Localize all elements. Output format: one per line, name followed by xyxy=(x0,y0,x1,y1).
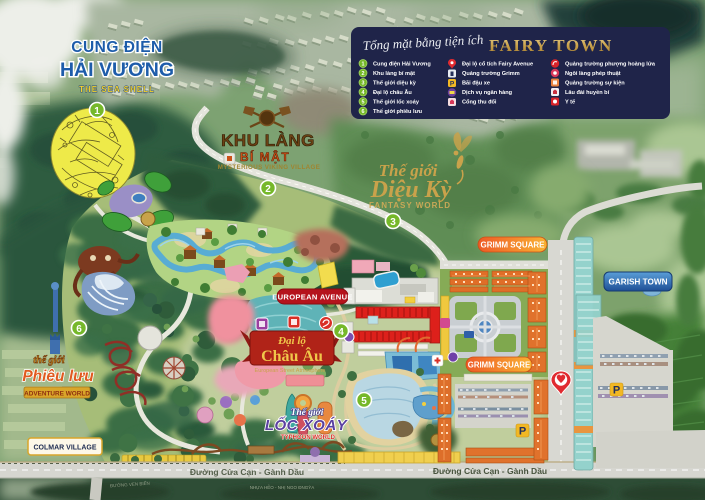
svg-text:P: P xyxy=(613,385,620,397)
svg-text:LỐC XOÁY: LỐC XOÁY xyxy=(265,416,349,434)
svg-text:2: 2 xyxy=(362,71,365,77)
svg-text:Thế giới diệu kỳ: Thế giới diệu kỳ xyxy=(373,80,417,87)
svg-text:1: 1 xyxy=(362,62,365,68)
svg-text:Đại lộ châu Âu: Đại lộ châu Âu xyxy=(373,89,412,96)
svg-text:thế giới: thế giới xyxy=(33,355,64,366)
svg-text:6: 6 xyxy=(76,324,82,335)
svg-text:GRIMM SQUARE: GRIMM SQUARE xyxy=(468,361,530,370)
svg-text:GARISH TOWN: GARISH TOWN xyxy=(609,278,668,287)
svg-text:4: 4 xyxy=(362,90,365,96)
svg-text:FANTASY WORLD: FANTASY WORLD xyxy=(369,201,451,210)
svg-text:Cung điện Hải Vương: Cung điện Hải Vương xyxy=(373,62,431,68)
svg-text:HẢI VƯƠNG: HẢI VƯƠNG xyxy=(60,58,174,81)
svg-text:Y tế: Y tế xyxy=(565,99,576,106)
svg-text:MYSTERIOUS VIKING VILLAGE: MYSTERIOUS VIKING VILLAGE xyxy=(218,164,320,171)
svg-text:5: 5 xyxy=(362,100,365,106)
svg-text:Dịch vụ ngân hàng: Dịch vụ ngân hàng xyxy=(462,90,513,96)
svg-text:2: 2 xyxy=(265,184,271,195)
svg-text:P: P xyxy=(450,80,455,87)
svg-text:GRIMM SQUARE: GRIMM SQUARE xyxy=(481,241,546,250)
svg-text:3: 3 xyxy=(390,217,396,228)
svg-text:6: 6 xyxy=(362,109,365,115)
svg-text:EUROPEAN AVENUE: EUROPEAN AVENUE xyxy=(272,293,352,302)
svg-text:Đại lộ cổ tích Fairy Avenue: Đại lộ cổ tích Fairy Avenue xyxy=(462,61,533,68)
svg-text:Thế giới lốc xoáy: Thế giới lốc xoáy xyxy=(373,99,420,106)
svg-text:COLMAR VILLAGE: COLMAR VILLAGE xyxy=(34,445,97,452)
svg-text:CUNG ĐIỆN: CUNG ĐIỆN xyxy=(71,38,162,56)
svg-text:Đại lộ: Đại lộ xyxy=(277,335,306,347)
svg-text:Quảng trường Grimm: Quảng trường Grimm xyxy=(462,71,520,77)
svg-text:ADVENTURE WORLD: ADVENTURE WORLD xyxy=(24,391,90,398)
svg-text:Quảng trường phượng hoàng lửa: Quảng trường phượng hoàng lửa xyxy=(565,62,656,68)
svg-text:Thế giới phiêu lưu: Thế giới phiêu lưu xyxy=(373,108,423,115)
svg-text:TYPHOON WORLD: TYPHOON WORLD xyxy=(281,435,336,441)
svg-text:5: 5 xyxy=(361,396,367,407)
svg-text:European Street Atmosphere: European Street Atmosphere xyxy=(255,368,326,374)
svg-text:P: P xyxy=(519,426,526,438)
svg-text:KHU LÀNG: KHU LÀNG xyxy=(221,131,315,150)
svg-text:3: 3 xyxy=(362,81,365,87)
svg-text:1: 1 xyxy=(94,106,100,117)
svg-text:Lâu đài huyền bí: Lâu đài huyền bí xyxy=(565,90,610,96)
svg-text:Bãi đậu xe: Bãi đậu xe xyxy=(462,81,490,87)
svg-text:Đường Cửa Cạn - Gành Dầu: Đường Cửa Cạn - Gành Dầu xyxy=(433,466,547,476)
svg-text:4: 4 xyxy=(338,327,344,338)
svg-text:Đường Cửa Cạn - Gành Dầu: Đường Cửa Cạn - Gành Dầu xyxy=(190,467,304,477)
svg-text:NHỰA HẺO - NHỊ NGO ĐNGỲA: NHỰA HẺO - NHỊ NGO ĐNGỲA xyxy=(250,484,315,490)
svg-text:Cổng thu đổi: Cổng thu đổi xyxy=(462,99,497,106)
svg-text:BÍ MẬT: BÍ MẬT xyxy=(240,149,290,164)
svg-text:Quảng trường sự kiện: Quảng trường sự kiện xyxy=(565,81,625,87)
svg-text:Diệu Kỳ: Diệu Kỳ xyxy=(370,177,452,203)
svg-text:Khu làng bí mật: Khu làng bí mật xyxy=(373,71,415,77)
svg-text:Phiêu lưu: Phiêu lưu xyxy=(22,368,94,385)
svg-text:FAIRY TOWN: FAIRY TOWN xyxy=(489,36,613,55)
svg-text:Châu Âu: Châu Âu xyxy=(261,346,323,365)
svg-text:THE SEA SHELL: THE SEA SHELL xyxy=(79,85,155,94)
svg-text:Ngôi làng phép thuật: Ngôi làng phép thuật xyxy=(565,71,621,77)
